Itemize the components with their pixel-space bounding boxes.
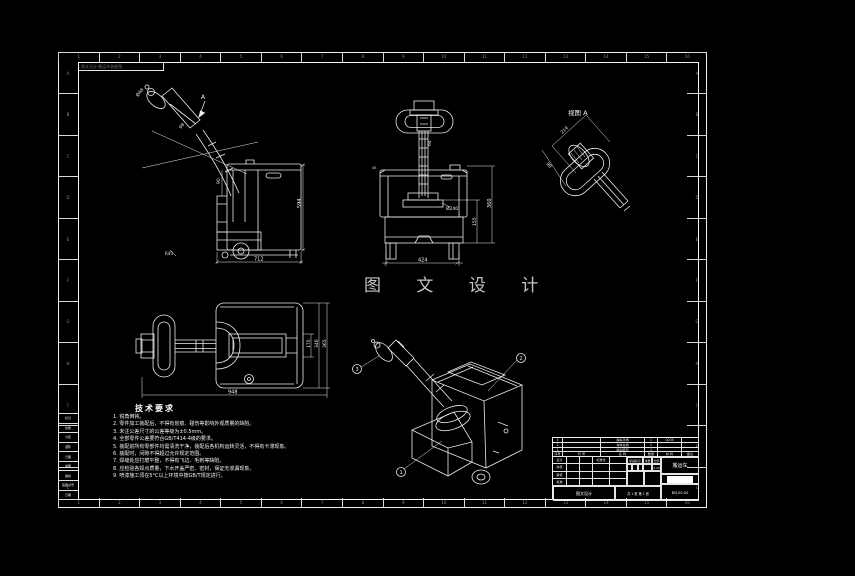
- side-view: Ø48 98 90 594 712 R45 A: [134, 85, 305, 264]
- margin-cell: 日期: [58, 491, 78, 501]
- standard-label: 标准化: [593, 457, 610, 464]
- sign-cell: [610, 464, 627, 471]
- note-line: 4. 全部零件公差要符合GB/T414-4级的要求。: [113, 436, 331, 443]
- balloon-1: 1: [400, 470, 403, 476]
- dim-front-chamfer: 45: [372, 166, 376, 170]
- margin-cell: 描校: [58, 471, 78, 481]
- stage-extra-cell: [644, 471, 661, 486]
- sign-label: 校核: [553, 464, 567, 471]
- title-block: 3 操纵手柄 1 Q235 2 车体总成 1 1 驱动装置 1 序号 代 号 名…: [552, 437, 699, 500]
- dim-plan-170: 170: [306, 339, 312, 348]
- sign-cell: [593, 464, 610, 471]
- scale-value: 1:10: [652, 464, 661, 471]
- section-label-a: A: [201, 94, 206, 101]
- dim-side-radius: R45: [165, 251, 173, 256]
- scale-label: 比例: [652, 457, 661, 464]
- balloon-2: 2: [520, 356, 523, 362]
- sign-cell: [567, 464, 580, 471]
- parts-list: 3 操纵手柄 1 Q235 2 车体总成 1 1 驱动装置 1 序号 代 号 名…: [553, 438, 699, 457]
- stage-extra-cell: [627, 471, 644, 486]
- margin-cell: 描图: [58, 462, 78, 472]
- watermark-text: 图 文 设 计: [364, 271, 553, 296]
- sign-cell: [567, 457, 580, 464]
- margin-cell: 分区: [58, 433, 78, 443]
- drawing-code: BYJ-00-00: [661, 484, 699, 501]
- sign-label: 审核: [553, 472, 567, 479]
- sign-cell: [580, 464, 593, 471]
- dim-side-height: 594: [297, 198, 303, 208]
- dim-front-width: 424: [418, 258, 428, 264]
- dim-side-handle-dia: Ø48: [134, 87, 145, 99]
- sign-cell: [610, 472, 627, 479]
- dim-side-98: 98: [178, 122, 186, 130]
- note-line: 2. 零件加工装配后，不得有划痕、碰伤等影响外观质量的缺陷。: [113, 421, 331, 428]
- technical-notes: 技术要求 1. 锐角倒钝。 2. 零件加工装配后，不得有划痕、碰伤等影响外观质量…: [113, 403, 331, 481]
- weight-label: 重量: [643, 457, 652, 464]
- cad-drawing-canvas: 12345678910111213141516 1234567891011121…: [0, 0, 855, 576]
- sign-cell: [580, 479, 593, 486]
- dim-plan-365: 365: [322, 339, 328, 348]
- detail-view-label: 视图 A: [568, 108, 588, 117]
- dim-front-360: 360: [487, 198, 493, 208]
- sheet-info: 共 1 张 第 1 张: [615, 486, 661, 501]
- weight-value: [643, 464, 652, 471]
- note-line: 5. 装配前所有零部件均需清洗干净，装配后各机构运转灵活，不得有卡滞现象。: [113, 444, 331, 451]
- dim-detail-214: 214: [559, 125, 569, 135]
- margin-signature-table: 标记处数分区签字日期描图描校底图总号日期: [58, 413, 78, 500]
- dim-plan-346: 346: [314, 339, 320, 348]
- company-name: 图文设计: [553, 486, 615, 501]
- margin-cell: 签字: [58, 443, 78, 453]
- balloon-3: 3: [356, 367, 359, 373]
- dim-front-155: 155: [472, 217, 478, 226]
- sign-cell: [567, 472, 580, 479]
- detail-view-a: 214 98 视图 A: [542, 108, 630, 211]
- dim-plan-total: 948: [228, 390, 238, 396]
- sign-cell: [610, 479, 627, 486]
- dim-side-90: 90: [216, 178, 222, 184]
- note-line: 7. 焊缝处应打磨平整，不得有飞边、毛刺等缺陷。: [113, 458, 331, 465]
- dim-front-base-dia: Ø240: [446, 205, 458, 212]
- isometric-view: 1 2 3: [353, 340, 526, 485]
- drawing-title: 搬运车: [661, 457, 699, 474]
- dim-side-length: 712: [254, 257, 264, 263]
- sign-cell: [610, 457, 627, 464]
- stage-mark-label: 阶段标记: [627, 457, 643, 464]
- sign-cell: [567, 479, 580, 486]
- front-view: 64 Ø240 360 155 424 45: [372, 101, 495, 266]
- margin-cell: 处数: [58, 424, 78, 434]
- notes-title: 技术要求: [135, 403, 331, 414]
- sign-cell: [593, 472, 610, 479]
- plan-view: 170 346 365 948: [136, 303, 330, 398]
- sign-label: 批准: [553, 479, 567, 486]
- highlight-block: [667, 476, 693, 483]
- margin-cell: 底图总号: [58, 481, 78, 491]
- signature-grid: 设计 标准化 校核 审核 批准: [553, 457, 627, 486]
- margin-cell: 标记: [58, 414, 78, 424]
- drawing-number-cell: [661, 474, 699, 484]
- sign-cell: [580, 472, 593, 479]
- sign-cell: [593, 479, 610, 486]
- dim-detail-98: 98: [545, 161, 553, 169]
- sign-cell: [580, 457, 593, 464]
- note-line: 9. 喷漆施工须在5°C以上环境中按GB/T规定进行。: [113, 473, 331, 480]
- dim-front-64: 64: [427, 140, 433, 146]
- sign-label: 设计: [553, 457, 567, 464]
- margin-cell: 日期: [58, 452, 78, 462]
